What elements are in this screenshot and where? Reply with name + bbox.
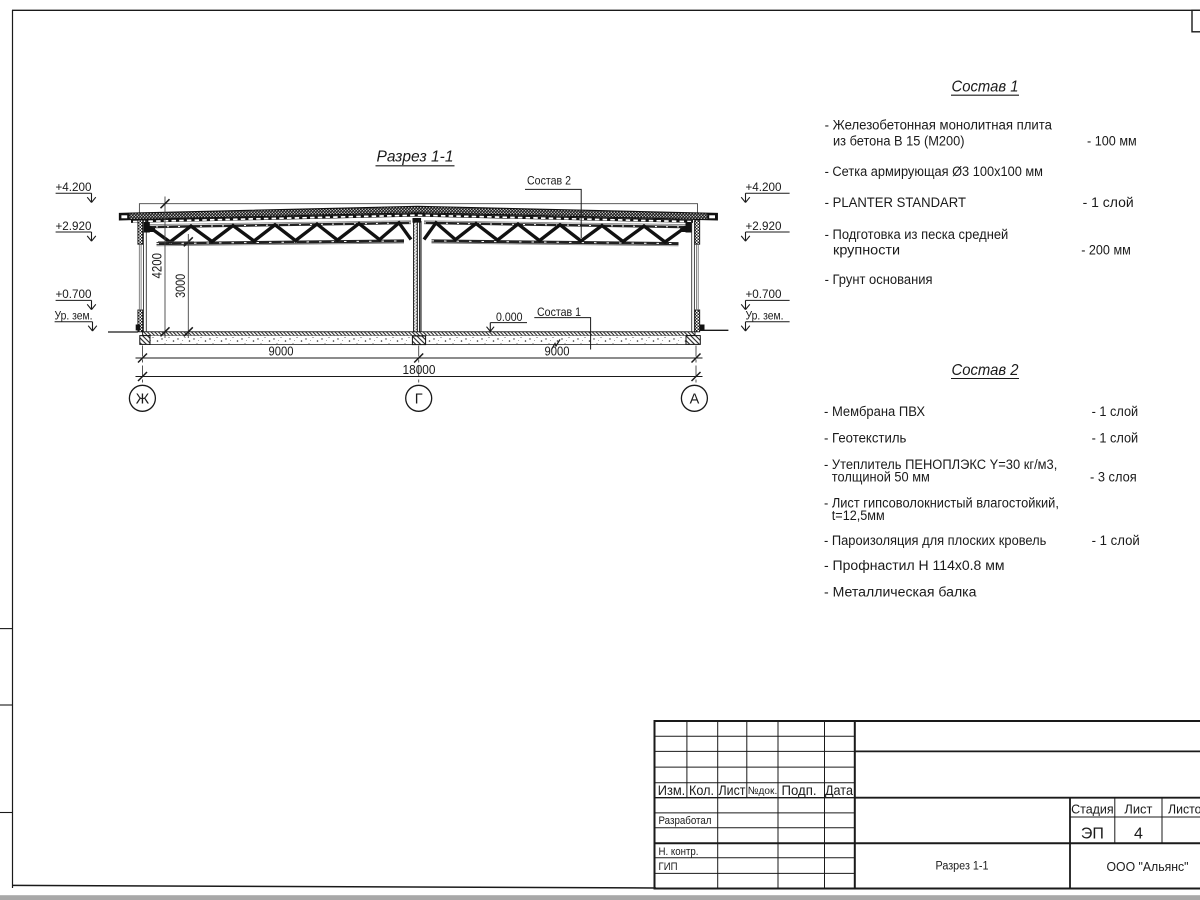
svg-text:0.000: 0.000 (496, 310, 523, 324)
svg-text:ЭП: ЭП (1081, 826, 1104, 843)
svg-text:Состав 2: Состав 2 (952, 362, 1019, 379)
svg-text:- Подготовка из песка средней: - Подготовка из песка средней (825, 227, 1009, 242)
svg-text:Подп.: Подп. (782, 783, 817, 798)
svg-text:Листов: Листов (1168, 803, 1200, 817)
svg-text:Ур. зем.: Ур. зем. (55, 309, 93, 323)
svg-text:Кол.: Кол. (689, 783, 714, 798)
svg-text:Разрез 1-1: Разрез 1-1 (936, 861, 989, 873)
svg-text:Лист: Лист (1124, 803, 1152, 817)
svg-text:Стадия: Стадия (1071, 803, 1114, 817)
svg-text:Лист: Лист (719, 783, 746, 798)
svg-text:- 1 слой: - 1 слой (1092, 533, 1140, 548)
svg-text:А: А (690, 391, 700, 407)
svg-text:- 200 мм: - 200 мм (1081, 242, 1131, 257)
svg-text:Разрез 1-1: Разрез 1-1 (377, 149, 454, 166)
svg-text:Г: Г (415, 391, 423, 407)
svg-text:+0.700: +0.700 (56, 287, 92, 301)
svg-text:9000: 9000 (269, 345, 294, 359)
svg-text:- 100 мм: - 100 мм (1087, 133, 1137, 148)
svg-text:4200: 4200 (149, 253, 165, 279)
svg-text:Разработал: Разработал (659, 815, 712, 827)
svg-text:ООО "Альянс": ООО "Альянс" (1107, 859, 1189, 874)
svg-text:+4.200: +4.200 (746, 180, 782, 194)
svg-text:Ур. зем.: Ур. зем. (746, 309, 784, 323)
svg-text:- Геотекстиль: - Геотекстиль (824, 430, 906, 445)
svg-text:+2.920: +2.920 (746, 219, 782, 233)
svg-text:Н. контр.: Н. контр. (659, 846, 699, 858)
svg-text:Состав 1: Состав 1 (952, 79, 1019, 96)
svg-text:- PLANTER STANDART: - PLANTER STANDART (825, 195, 966, 210)
svg-text:- 1 слой: - 1 слой (1083, 195, 1134, 210)
svg-text:Состав 2: Состав 2 (527, 173, 571, 187)
svg-text:- Металлическая балка: - Металлическая балка (824, 584, 977, 599)
svg-text:+4.200: +4.200 (56, 180, 92, 194)
svg-text:4: 4 (1134, 826, 1143, 843)
svg-text:толщиной 50 мм: толщиной 50 мм (832, 469, 930, 484)
svg-text:- Железобетонная монолитная п: - Железобетонная монолитная плита (825, 118, 1053, 133)
svg-text:- 1 слой: - 1 слой (1092, 404, 1139, 419)
svg-text:Ж: Ж (136, 391, 150, 407)
svg-text:+0.700: +0.700 (746, 287, 782, 301)
svg-text:+2.920: +2.920 (56, 219, 92, 233)
svg-text:- Мембрана ПВХ: - Мембрана ПВХ (824, 404, 925, 419)
svg-text:Изм.: Изм. (658, 783, 686, 798)
svg-text:ГИП: ГИП (659, 861, 678, 873)
svg-text:Состав 1: Состав 1 (537, 305, 581, 319)
svg-text:- Пароизоляция для плоских кро: - Пароизоляция для плоских кровель (824, 533, 1046, 548)
svg-text:из бетона В 15 (М200): из бетона В 15 (М200) (833, 133, 965, 148)
svg-text:3000: 3000 (172, 274, 188, 298)
svg-text:- Грунт основания: - Грунт основания (825, 272, 933, 287)
svg-text:- Профнастил Н 114х0.8 мм: - Профнастил Н 114х0.8 мм (824, 558, 1005, 573)
svg-text:- 1 слой: - 1 слой (1092, 430, 1139, 445)
svg-text:- Сетка армирующая Ø3 100х100: - Сетка армирующая Ø3 100х100 мм (825, 164, 1043, 179)
svg-text:t=12,5мм: t=12,5мм (832, 508, 885, 523)
svg-text:крупности: крупности (833, 242, 900, 257)
svg-text:№док.: №док. (748, 785, 778, 797)
svg-text:- 3 слоя: - 3 слоя (1090, 469, 1137, 484)
svg-text:9000: 9000 (545, 345, 570, 359)
svg-text:Дата: Дата (825, 783, 853, 798)
svg-text:18000: 18000 (403, 363, 436, 377)
